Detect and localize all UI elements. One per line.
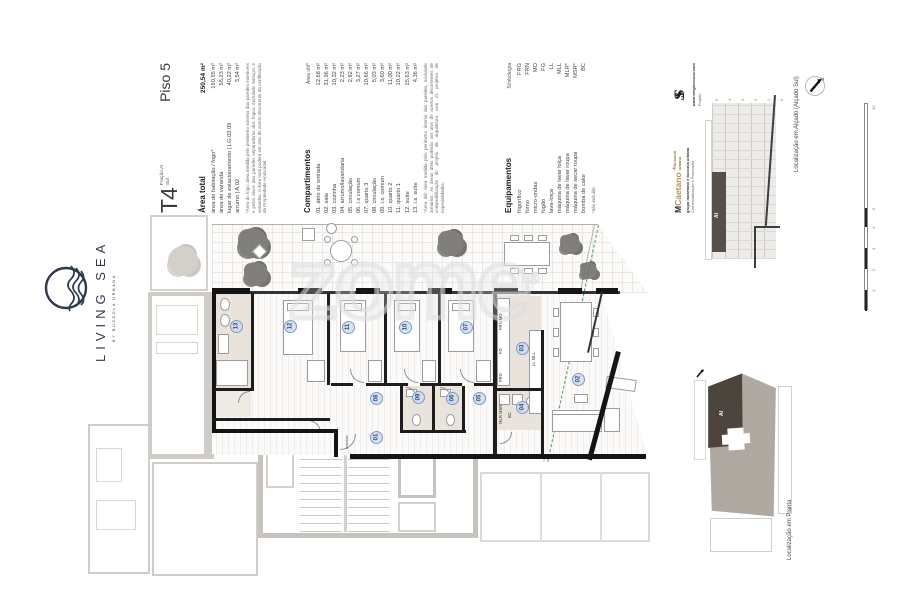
partition-wall — [384, 293, 387, 385]
unit-header: T4 Fração AI Sul Piso 5 — [158, 63, 198, 213]
row-label: forno — [524, 200, 532, 213]
partition-wall — [400, 386, 403, 433]
fraction-label: Fração AI — [160, 165, 165, 186]
row-label: 02. sala — [323, 193, 331, 213]
partition-wall — [214, 388, 254, 391]
row-value: MLL — [556, 63, 564, 74]
row-value: 2,23 m² — [339, 63, 347, 82]
wardrobe — [307, 360, 325, 382]
wall-pier — [596, 288, 618, 295]
mcaetano-logo: MCaetano ✳bússolaurbana — [673, 148, 682, 213]
neighbor-wall — [600, 472, 602, 542]
architect-credit: S www.sergiosousa.com Projeto — [673, 63, 702, 106]
brand-name: LIVING SEA — [93, 240, 108, 362]
coffee-table — [574, 394, 588, 403]
row-label: 05. circulação — [347, 178, 355, 213]
row-label: micro-ondas — [532, 182, 540, 213]
neighbor-plant — [168, 246, 198, 276]
scale-segment — [865, 248, 867, 269]
chair — [538, 268, 547, 274]
equipment-section: Equipamentos Simbologia frigoríficoFRG f… — [504, 63, 624, 213]
pillow — [344, 303, 362, 311]
row-label: 08. circulação — [371, 178, 379, 213]
row-label: 07. quarto 3 — [363, 183, 371, 213]
equipment-label: FG — [499, 348, 504, 354]
shower — [216, 360, 248, 386]
row-value: 3,54 m² — [234, 63, 242, 82]
area-util-header: Área útil* — [306, 63, 312, 84]
neighbor-furniture — [156, 305, 198, 335]
table-row: frigoríficoFRG — [516, 63, 524, 213]
row-label: 10. quarto 2 — [387, 183, 395, 213]
row-label: máquina de secar roupa — [572, 152, 580, 213]
floor-tick: 3 — [740, 99, 745, 101]
row-label: área de habitação / fogo* — [210, 149, 218, 213]
equipment-title: Equipamentos — [504, 158, 513, 213]
row-label: lugar de estacionamento | LG.03.09 — [226, 123, 234, 213]
wall-segment — [350, 454, 646, 459]
room-badge: 13 — [230, 320, 243, 333]
site-outline — [710, 518, 772, 552]
floor-label: Piso 5 — [158, 63, 173, 102]
row-label: bomba de calor — [580, 174, 588, 213]
scale-segment — [865, 290, 867, 311]
floor-tick: 0 — [779, 99, 784, 101]
row-value: 150,55 m² — [210, 63, 218, 89]
room-badge: 07 — [460, 321, 473, 334]
row-label: fogão — [540, 199, 548, 213]
row-label: 06. i.s comum — [355, 178, 363, 213]
room-badge: 09 — [412, 391, 425, 404]
row-value: 56,23 m² — [218, 63, 226, 85]
washing-machine — [499, 394, 510, 405]
table-row: bomba de calorBC — [580, 63, 588, 213]
neighbor-wall — [540, 472, 542, 542]
plant — [560, 234, 580, 254]
row-label: arrumo | A.02 — [234, 179, 242, 213]
partition-wall — [541, 330, 544, 455]
plant — [438, 230, 464, 256]
wall-pier — [356, 288, 380, 295]
chair — [324, 259, 331, 266]
table-row: 08. circulação5,03 m² — [371, 63, 379, 213]
table-row: 03. cozinha10,32 m² — [331, 63, 339, 213]
row-value: 15,63 m² — [404, 63, 412, 85]
neighbor-unit — [152, 462, 258, 576]
mcaetano-rest: Caetano — [673, 172, 683, 206]
floor-tick: 1 — [766, 99, 771, 101]
partition-wall — [400, 430, 466, 433]
site-unit-tag: AI — [719, 411, 725, 416]
row-value: 3,27 m² — [355, 63, 363, 82]
row-label: máquina de lavar loiça — [556, 156, 564, 213]
orientation-label: Sul — [166, 178, 171, 185]
symbology-header: Simbologia — [507, 63, 513, 89]
stair-flight — [300, 452, 342, 532]
row-value: 3,60 m² — [379, 63, 387, 82]
area-footnote: *Área do fogo: área medida pelo perímetr… — [245, 63, 268, 213]
table-row: 11. quarto 110,22 m² — [395, 63, 403, 213]
plant — [580, 262, 597, 279]
architect-caption: www.sergiosousa.com — [691, 63, 696, 106]
row-value: FG — [540, 63, 548, 71]
row-value: 5,03 m² — [371, 63, 379, 82]
elevation-unit-highlight — [712, 172, 726, 252]
compartments-footnote: *Área útil: área medida pelo perímetro i… — [423, 63, 446, 213]
scale-tick: 2 — [871, 269, 876, 271]
unit-fraction: Fração AI Sul — [160, 165, 172, 186]
site-outline — [694, 380, 706, 460]
partition-wall — [331, 383, 353, 386]
pillow — [452, 303, 470, 311]
table-row: 10. quarto 211,00 m² — [387, 63, 395, 213]
row-label: 01. átrio de entrada — [315, 164, 323, 213]
neighbor-wall — [148, 454, 214, 459]
table-row: 02. sala31,96 m² — [323, 63, 331, 213]
table-row: máquina de lavar roupaMLR* — [564, 63, 572, 213]
floor-tick: 5 — [714, 99, 719, 101]
toilet — [412, 414, 421, 426]
site-plan-caption: Localização em Planta — [787, 500, 793, 560]
equipment-label: LL MLL — [532, 352, 537, 366]
sergio-sousa-logo: S — [673, 63, 688, 100]
mcaetano-m: M — [673, 206, 683, 213]
elevation-caption: Localização em Alçado (Alçado Sul) — [794, 76, 800, 172]
row-value: MLR* — [564, 63, 572, 77]
scale-segment — [865, 208, 867, 227]
toilet — [220, 298, 230, 311]
scale-tick: 5 — [871, 208, 876, 210]
partition-wall — [327, 293, 330, 385]
room-badge: 02 — [572, 373, 585, 386]
credits-block: MCaetano ✳bússolaurbana grupo mcaetano e… — [673, 63, 704, 213]
partition-wall — [438, 293, 441, 385]
washbasin — [218, 334, 229, 354]
table-row: 09. i.s. comum3,60 m² — [379, 63, 387, 213]
row-label: lava-loiça — [548, 189, 556, 213]
chair — [553, 308, 559, 317]
table-row: 07. quarto 310,66 m² — [363, 63, 371, 213]
pillow — [398, 303, 416, 311]
elevation-unit-tag: AI — [714, 213, 720, 218]
wall-pier — [212, 288, 250, 295]
site-north-arrow-icon — [694, 368, 706, 380]
bussola-urbana-logo: ✳bússolaurbana — [673, 151, 682, 170]
table-row: micro-ondasMO — [532, 63, 540, 213]
scale-tick: 3 — [871, 248, 876, 250]
row-value: 12,68 m² — [315, 63, 323, 85]
room-badge: 04 — [516, 401, 529, 414]
chair — [593, 348, 599, 357]
room-badge: 12 — [284, 320, 297, 333]
chair — [351, 236, 358, 243]
ground-profile-line — [754, 226, 756, 268]
developer-role: Comercialização e Promoção — [690, 148, 695, 213]
partition-wall — [462, 386, 465, 433]
partition-wall — [432, 386, 435, 433]
compartments-section: Compartimentos Área útil* 01. átrio de e… — [303, 63, 499, 213]
wardrobe — [422, 360, 436, 382]
row-label: 13. i.s. suíte — [412, 182, 420, 213]
equipment-label: BC — [508, 412, 513, 418]
room-badge: 11 — [342, 321, 355, 334]
partition-wall — [420, 383, 462, 386]
scale-bar — [864, 103, 868, 310]
row-label: 03. cozinha — [331, 184, 339, 213]
chair — [524, 268, 533, 274]
wardrobe — [368, 360, 382, 382]
area-total-value: 250,54 m² — [200, 63, 207, 93]
equipment-label: MLR MSR — [499, 405, 504, 424]
row-value: LL — [548, 63, 556, 69]
chair — [524, 235, 533, 241]
outdoor-table — [504, 242, 550, 266]
row-value: 31,96 m² — [323, 63, 331, 85]
equipment-label: FRG — [499, 373, 504, 382]
room-badge: 10 — [399, 321, 412, 334]
table-row: fogãoFG — [540, 63, 548, 213]
row-value: 10,32 m² — [331, 63, 339, 85]
area-total-section: Área total 250,54 m² área de habitação /… — [198, 63, 298, 213]
row-label: 11. quarto 1 — [395, 183, 403, 213]
wall-pier — [558, 288, 582, 295]
core-room — [398, 502, 436, 532]
neighbor-wall — [148, 292, 206, 296]
wall-segment — [212, 291, 216, 432]
wave-logo-icon — [44, 262, 90, 312]
row-value: FRG — [516, 63, 524, 75]
area-total-title: Área total — [198, 176, 207, 213]
bussola-line1: bússola — [672, 151, 677, 166]
table-row: máquina de secar roupaMSR* — [572, 63, 580, 213]
chair — [510, 235, 519, 241]
room-badge: 08 — [370, 392, 383, 405]
table-row: máquina de lavar loiçaMLL — [556, 63, 564, 213]
row-value: 10,22 m² — [395, 63, 403, 85]
table-row: 05. circulação2,82 m² — [347, 63, 355, 213]
wall-pier — [494, 288, 518, 295]
row-label: área de varanda — [218, 172, 226, 213]
chair — [553, 328, 559, 337]
developer-credit: MCaetano ✳bússolaurbana grupo mcaetano e… — [673, 148, 702, 213]
room-badge: 05 — [473, 392, 486, 405]
equipment-label: FRN MO — [499, 313, 504, 330]
compartments-title: Compartimentos — [303, 149, 312, 213]
planter-box — [302, 228, 315, 241]
stair-rail — [344, 452, 347, 532]
room-badge: 06 — [446, 392, 459, 405]
svg-text:N: N — [821, 77, 824, 82]
row-value: 2,82 m² — [347, 63, 355, 82]
neighbor-unit — [88, 424, 150, 574]
chair — [510, 268, 519, 274]
bussola-line2: urbana — [677, 157, 682, 170]
room-badge: 03 — [516, 342, 529, 355]
wall-segment — [334, 429, 338, 457]
info-panel: T4 Fração AI Sul Piso 5 Área total 250,5… — [158, 63, 704, 213]
table-row: área de varanda56,23 m² — [218, 63, 226, 213]
neighbor-furniture — [96, 500, 136, 530]
table-row: lava-loiçaLL — [548, 63, 556, 213]
table-row: área de habitação / fogo*150,55 m² — [210, 63, 218, 213]
row-value: 10,66 m² — [363, 63, 371, 85]
entrance-label: entrada — [345, 435, 349, 449]
plant — [244, 262, 268, 286]
chair — [324, 236, 331, 243]
chair — [351, 259, 358, 266]
toilet — [446, 414, 455, 426]
neighbor-wall — [204, 292, 212, 458]
wardrobe — [476, 360, 491, 382]
table-row: arrumo | A.023,54 m² — [234, 63, 242, 213]
dining-table — [560, 302, 592, 362]
partition-wall — [493, 293, 497, 455]
sofa-back — [552, 410, 602, 415]
site-core-plus — [722, 433, 751, 445]
elevator — [398, 456, 436, 498]
wall-pier — [298, 288, 322, 295]
table-row: 13. i.s. suíte4,36 m² — [412, 63, 420, 213]
table-row: 12. suíte15,63 m² — [404, 63, 412, 213]
partition-wall — [474, 383, 493, 386]
chair — [538, 235, 547, 241]
ground-profile-line — [754, 226, 780, 228]
floor-tick: 4 — [727, 99, 732, 101]
bidet — [220, 314, 230, 327]
planter-pot — [326, 223, 337, 234]
equipment-footnote: *não incluído — [591, 63, 597, 213]
drawing-sheet: LIVING SEA BY BÚSSOLA URBANA T4 Fração A… — [0, 0, 900, 597]
neighbor-below — [480, 472, 650, 542]
elevation-balcony-edge — [705, 120, 712, 260]
row-label: 12. suíte — [404, 191, 412, 213]
row-value: 40,22 m² — [226, 63, 234, 85]
row-value: 11,00 m² — [387, 63, 395, 85]
scale-tick: 4 — [871, 227, 876, 229]
architect-role: Projeto — [697, 63, 702, 106]
table-row: 06. i.s comum3,27 m² — [355, 63, 363, 213]
row-label: máquina de lavar roupa — [564, 153, 572, 213]
row-value: FRN — [524, 63, 532, 75]
floor-tick: 2 — [753, 99, 758, 101]
row-value: BC — [580, 63, 588, 71]
site-outline — [778, 386, 792, 514]
neighbor-furniture — [96, 448, 122, 482]
stair-flight — [348, 452, 390, 532]
table-row: 01. átrio de entrada12,68 m² — [315, 63, 323, 213]
scale-tick: 10 — [871, 106, 876, 110]
wall-segment — [212, 429, 338, 433]
row-value: 4,36 m² — [412, 63, 420, 82]
table-row: 04. arrumo/lavandaria2,23 m² — [339, 63, 347, 213]
row-value: MO — [532, 63, 540, 72]
armchair — [604, 408, 620, 432]
round-table — [330, 240, 352, 262]
table-row: fornoFRN — [524, 63, 532, 213]
north-compass-icon: N — [804, 74, 828, 98]
row-label: frigorífico — [516, 190, 524, 213]
room-badge: 01 — [370, 431, 383, 444]
partition-wall — [497, 388, 543, 391]
scale-tick: 1 — [871, 290, 876, 292]
row-label: 04. arrumo/lavandaria — [339, 158, 347, 213]
pillow — [287, 303, 309, 311]
table-row: lugar de estacionamento | LG.03.0940,22 … — [226, 63, 234, 213]
unit-type: T4 — [158, 188, 181, 213]
partition-wall — [251, 293, 254, 390]
terrace-edge — [212, 224, 598, 225]
partition-wall — [212, 418, 330, 421]
row-value: MSR* — [572, 63, 580, 78]
brand-tagline: BY BÚSSOLA URBANA — [112, 274, 116, 342]
neighbor-furniture — [156, 342, 198, 354]
row-label: 09. i.s. comum — [379, 176, 387, 213]
chair — [553, 348, 559, 357]
